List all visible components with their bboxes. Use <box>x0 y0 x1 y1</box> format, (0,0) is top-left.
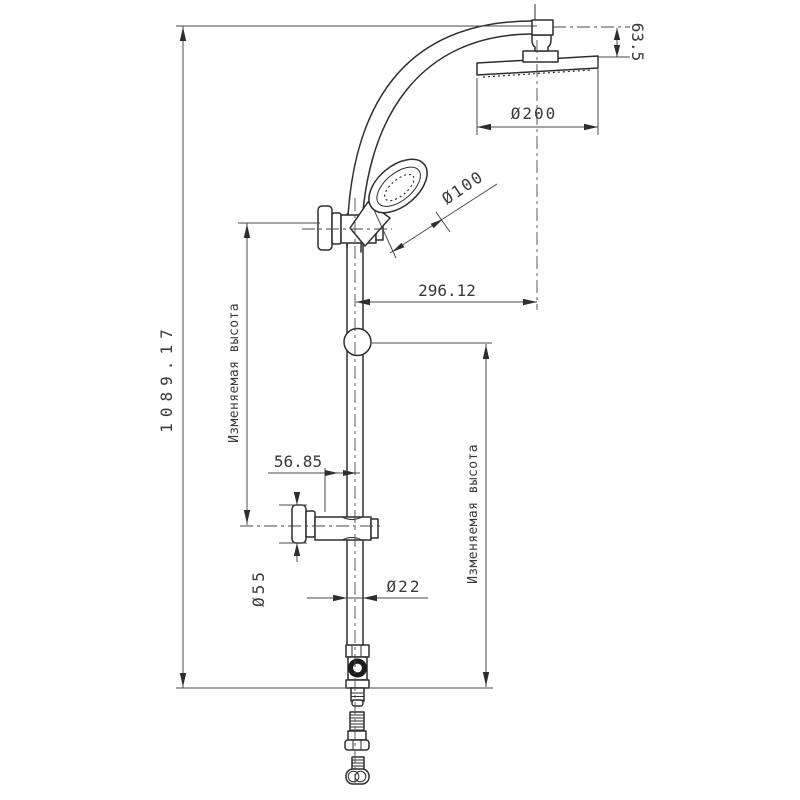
hose-fitting-upper <box>345 712 369 750</box>
hand-shower-diameter-label: Ø100 <box>438 167 487 209</box>
flange-diameter-label: Ø55 <box>249 569 268 607</box>
dim-horizontal-offset: 296.12 <box>356 281 537 305</box>
dim-adjustable-height-left: Изменяемая высота <box>227 223 320 525</box>
horizontal-offset-label: 296.12 <box>418 281 476 300</box>
tube-diameter-label: Ø22 <box>387 577 422 596</box>
diverter-valve <box>346 645 369 706</box>
lower-bracket <box>292 505 378 543</box>
hose-fitting-lower <box>346 757 369 784</box>
adjustable-height-right-label: Изменяемая высота <box>466 444 481 584</box>
dim-bracket-offset: 56.85 <box>268 452 360 512</box>
ball-joint <box>344 329 371 356</box>
technical-drawing-page: 1089.17 Изменяемая высота Изменяемая выс… <box>0 0 800 800</box>
mount-nut <box>532 35 551 51</box>
mount-base <box>523 51 558 62</box>
overhead-shower <box>477 4 598 77</box>
bracket-offset-label: 56.85 <box>274 452 322 471</box>
dim-tube-diameter: Ø22 <box>307 577 428 601</box>
shower-column-technical-drawing: 1089.17 Изменяемая высота Изменяемая выс… <box>0 0 800 800</box>
wall-plate <box>532 20 553 35</box>
overall-height-label: 1089.17 <box>157 323 176 432</box>
head-diameter-label: Ø200 <box>511 104 558 123</box>
adjustable-height-left-label: Изменяемая высота <box>227 303 242 443</box>
dim-head-drop: 63.5 <box>598 23 647 62</box>
centerlines <box>240 27 630 783</box>
dim-adjustable-height-right: Изменяемая высота <box>372 343 492 687</box>
head-drop-label: 63.5 <box>628 23 647 62</box>
